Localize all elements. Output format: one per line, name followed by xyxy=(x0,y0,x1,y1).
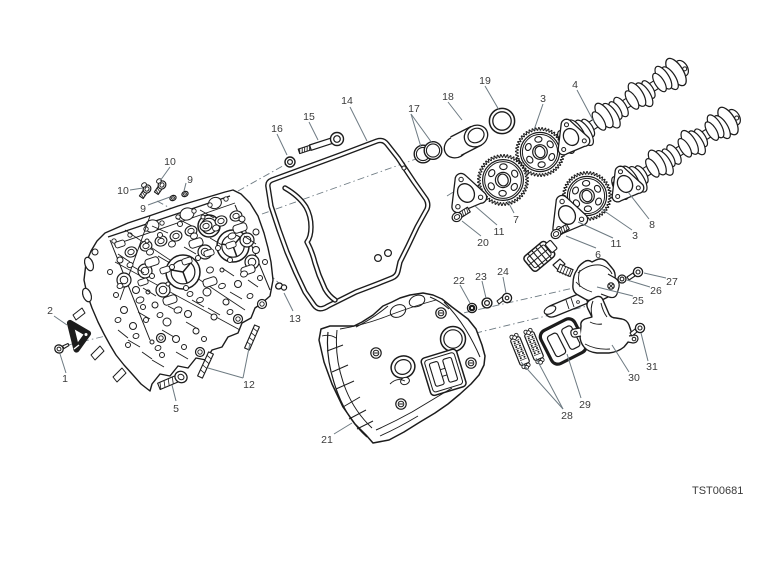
svg-text:15: 15 xyxy=(303,111,315,123)
svg-text:23: 23 xyxy=(475,271,487,283)
svg-text:8: 8 xyxy=(649,219,655,231)
svg-text:20: 20 xyxy=(477,237,489,249)
svg-text:19: 19 xyxy=(479,75,491,87)
svg-text:18: 18 xyxy=(442,91,454,103)
svg-text:5: 5 xyxy=(173,403,179,415)
svg-text:25: 25 xyxy=(632,295,644,307)
svg-text:6: 6 xyxy=(595,249,601,261)
svg-text:TST00681: TST00681 xyxy=(692,485,743,497)
svg-text:13: 13 xyxy=(289,313,301,325)
svg-text:24: 24 xyxy=(497,266,509,278)
svg-text:10: 10 xyxy=(164,156,176,168)
svg-text:10: 10 xyxy=(117,185,129,197)
svg-text:12: 12 xyxy=(243,379,255,391)
svg-text:2: 2 xyxy=(47,305,53,317)
svg-text:9: 9 xyxy=(140,203,146,215)
svg-text:7: 7 xyxy=(513,214,519,226)
svg-text:3: 3 xyxy=(632,230,638,242)
svg-text:22: 22 xyxy=(453,275,465,287)
svg-text:30: 30 xyxy=(628,372,640,384)
svg-text:28: 28 xyxy=(561,410,573,422)
svg-text:14: 14 xyxy=(341,95,353,107)
svg-text:31: 31 xyxy=(646,361,658,373)
svg-text:21: 21 xyxy=(321,434,333,446)
svg-text:1: 1 xyxy=(62,373,68,385)
svg-text:27: 27 xyxy=(666,276,678,288)
svg-text:16: 16 xyxy=(271,123,283,135)
svg-text:11: 11 xyxy=(611,238,622,250)
svg-text:29: 29 xyxy=(579,399,591,411)
svg-text:9: 9 xyxy=(187,174,193,186)
svg-text:17: 17 xyxy=(408,103,420,115)
svg-text:3: 3 xyxy=(540,93,546,105)
svg-text:26: 26 xyxy=(650,285,662,297)
svg-text:11: 11 xyxy=(494,226,505,238)
svg-text:4: 4 xyxy=(572,79,578,91)
